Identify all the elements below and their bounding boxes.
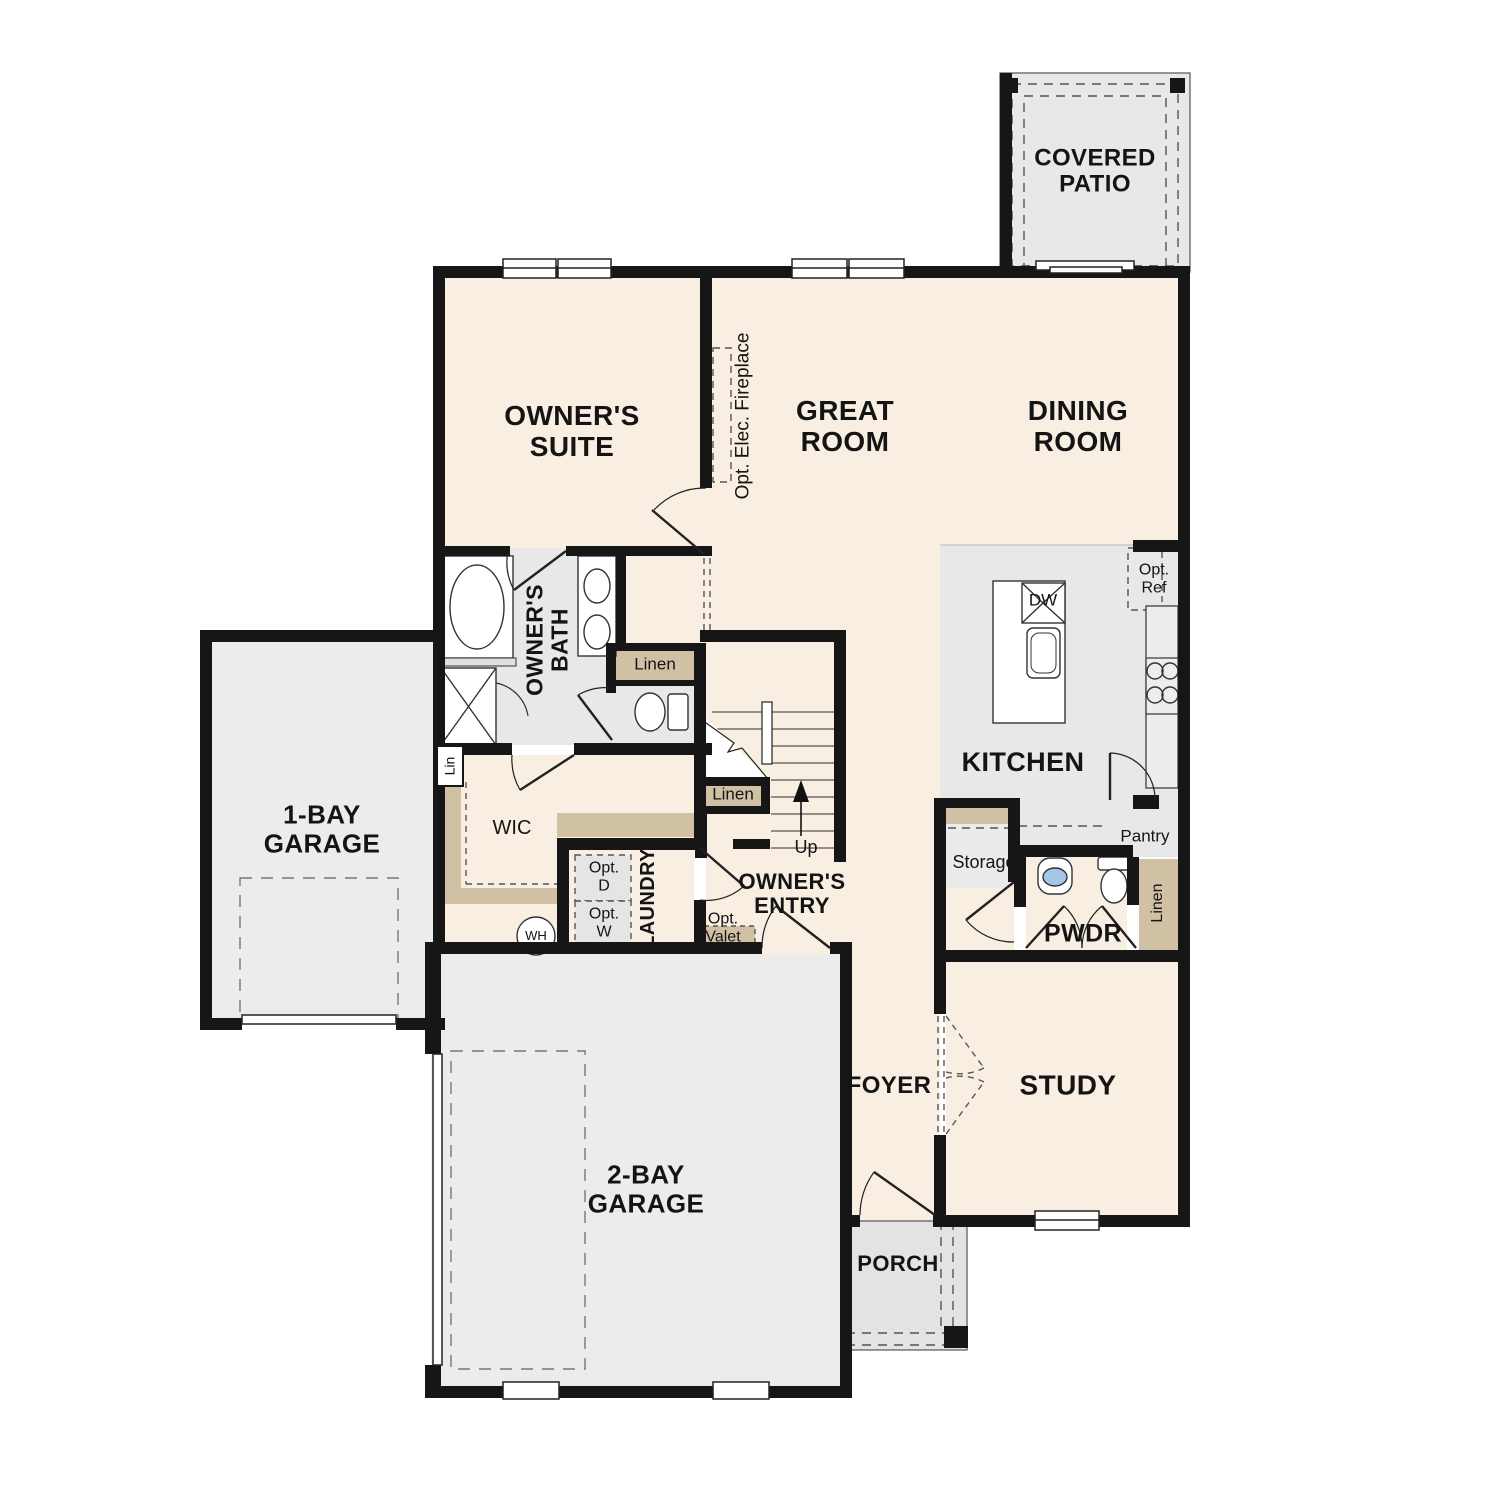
room-label-great-room: GREAT ROOM [796, 396, 894, 458]
wall [566, 546, 712, 556]
room-label-dining-room: DINING ROOM [1028, 396, 1128, 458]
stairs-up-label: Up [794, 838, 817, 858]
pwdr-toilet-tank [1098, 857, 1130, 870]
wall [830, 942, 852, 954]
wall [574, 743, 712, 755]
garage-window [713, 1382, 769, 1399]
wall [200, 630, 212, 1030]
wall [934, 962, 946, 1014]
note-opt-valet: Opt. Valet [705, 910, 740, 945]
room-label-owners-entry: OWNER'S ENTRY [738, 870, 845, 918]
note-opt-washer: Opt. W [589, 905, 619, 940]
note-opt-ref: Opt. Ref [1139, 561, 1169, 596]
wall [1097, 1215, 1190, 1227]
room-label-laundry: LAUNDRY [637, 848, 659, 948]
room-label-covered-patio: COVERED PATIO [1034, 146, 1156, 199]
wall [557, 838, 569, 954]
wall [933, 1215, 1037, 1227]
wic-shelf-left [445, 780, 461, 892]
room-label-study: STUDY [1020, 1071, 1117, 1102]
stair-newel-post [762, 702, 772, 764]
floor-plan-drawing [0, 0, 1500, 1500]
porch-post [944, 1326, 968, 1348]
patio-post [1003, 78, 1018, 93]
room-label-owners-suite: OWNER'S SUITE [504, 401, 639, 463]
room-label-owners-bath: OWNER'S BATH [523, 584, 574, 696]
wall [1127, 857, 1139, 905]
wic-shelf-bottom [445, 888, 561, 904]
wall [700, 266, 712, 488]
room-label-kitchen: KITCHEN [962, 748, 1085, 778]
wall [1014, 845, 1133, 857]
floor-plan-page: COVERED PATIO OWNER'S SUITE GREAT ROOM D… [0, 0, 1500, 1500]
pwdr-sink-basin [1043, 868, 1067, 886]
room-label-wic: WIC [493, 817, 532, 839]
one-bay-garage-door [242, 1015, 396, 1024]
wall [606, 643, 706, 651]
bathtub [441, 556, 513, 658]
wic-shelf-right [557, 813, 694, 837]
room-label-pantry: Pantry [1120, 828, 1169, 847]
wall [733, 839, 770, 849]
note-water-heater: WH [525, 929, 547, 943]
wall [840, 954, 852, 1398]
storage-hall-floor [946, 888, 1014, 950]
room-label-foyer: FOYER [847, 1073, 932, 1099]
wall [700, 630, 846, 642]
wall [427, 1386, 852, 1398]
wall [934, 950, 1190, 962]
wall [852, 1215, 860, 1227]
closet-label-linen-pwdr: Linen [1149, 883, 1167, 922]
closet-label-linen-stairs: Linen [712, 786, 754, 805]
room-label-pwdr: PWDR [1044, 920, 1122, 948]
note-opt-dryer: Opt. D [589, 859, 619, 894]
wall [934, 1135, 946, 1227]
wall [694, 643, 706, 745]
wall [1000, 73, 1012, 272]
wall [606, 680, 706, 686]
wall [616, 546, 626, 650]
room-label-porch: PORCH [857, 1252, 938, 1276]
wall [433, 266, 445, 954]
bath-vanity [578, 556, 616, 656]
wall [200, 630, 439, 642]
pwdr-toilet-bowl [1101, 869, 1127, 903]
wall [1178, 266, 1190, 1227]
wall [433, 546, 510, 556]
garage-window [503, 1382, 559, 1399]
bath-toilet-bowl [635, 693, 665, 731]
closet-label-lin: Lin [442, 757, 457, 776]
patio-slider-door [1050, 267, 1122, 273]
closet-label-linen-bath: Linen [634, 656, 676, 675]
wall [1133, 540, 1190, 552]
bath-toilet-tank [668, 694, 688, 730]
bath-hall-floor [626, 548, 706, 648]
wall [934, 798, 946, 962]
wall [934, 798, 1020, 808]
patio-post [1170, 78, 1185, 93]
room-label-one-bay-garage: 1-BAY GARAGE [264, 800, 381, 857]
room-label-storage: Storage [952, 853, 1015, 873]
wall [200, 1018, 242, 1030]
wall [425, 954, 441, 1054]
note-opt-elec-fireplace: Opt. Elec. Fireplace [734, 333, 755, 500]
wall [557, 838, 706, 850]
appliance-label-dw: DW [1029, 592, 1057, 611]
wall [694, 743, 706, 838]
storage-shelf [946, 808, 1014, 824]
tub-deck [441, 658, 516, 666]
room-label-two-bay-garage: 2-BAY GARAGE [588, 1160, 705, 1217]
two-bay-garage-door [433, 1054, 442, 1365]
wall [834, 630, 846, 862]
kitchen-sink [1027, 628, 1060, 678]
wall [761, 777, 770, 814]
